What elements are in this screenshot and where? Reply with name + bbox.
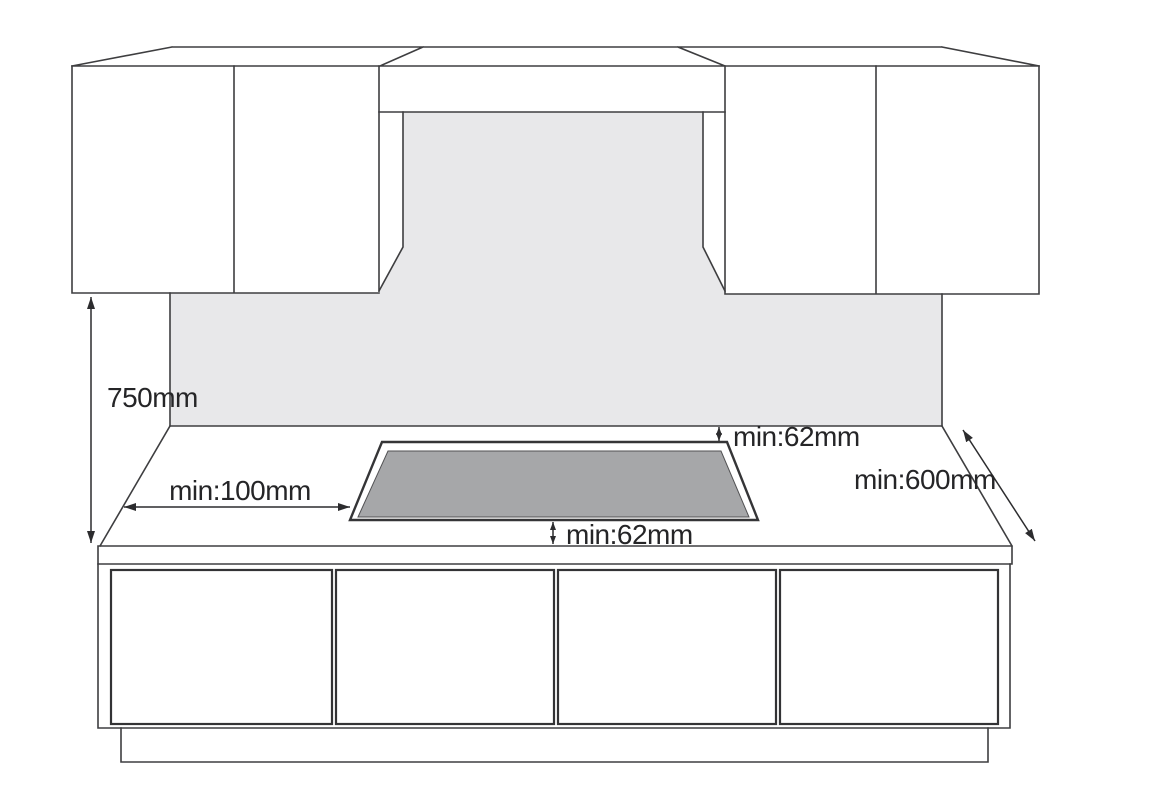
drawer-front-2 xyxy=(336,570,554,724)
dimension-label: min:62mm xyxy=(566,519,693,550)
drawer-front-1 xyxy=(111,570,332,724)
dimension-rear-clearance: min:62mm xyxy=(719,421,860,452)
hob-surface xyxy=(358,451,749,517)
dimension-label: 750mm xyxy=(107,382,198,413)
left-wall-cabinet xyxy=(72,66,379,293)
dimension-front-clearance: min:62mm xyxy=(553,519,693,550)
hob-installation-diagram: 750mm min:100mm min:62mm min:62mm min:60… xyxy=(0,0,1149,800)
drawer-front-3 xyxy=(558,570,776,724)
drawer-front-4 xyxy=(780,570,998,724)
right-wall-cabinet xyxy=(725,66,1039,294)
dimension-side-clearance: min:100mm xyxy=(124,475,350,507)
dimension-label: min:600mm xyxy=(854,464,996,495)
dimension-worktop-depth: min:600mm xyxy=(854,430,1035,541)
backsplash-wall xyxy=(170,112,942,426)
dimension-label: min:62mm xyxy=(733,421,860,452)
installation-drawing: 750mm min:100mm min:62mm min:62mm min:60… xyxy=(0,0,1149,800)
dimension-label: min:100mm xyxy=(169,475,311,506)
upper-row-top-edges xyxy=(72,47,1039,66)
plinth xyxy=(121,728,988,762)
